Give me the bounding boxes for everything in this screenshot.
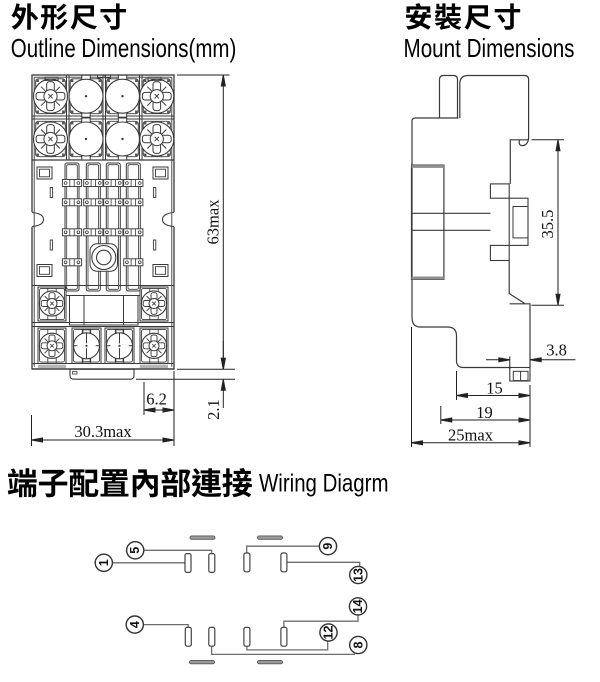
svg-text:2.1: 2.1 [204,399,223,420]
svg-text:15: 15 [486,379,503,398]
svg-text:14: 14 [351,599,365,613]
svg-text:13: 13 [351,568,365,582]
svg-text:30.3max: 30.3max [74,422,132,441]
svg-text:12: 12 [322,626,336,640]
svg-text:25max: 25max [448,426,494,445]
svg-text:8: 8 [351,641,365,648]
svg-text:3.8: 3.8 [546,340,567,359]
svg-text:Wiring Diagrm: Wiring Diagrm [259,470,389,498]
svg-text:6.2: 6.2 [146,390,167,409]
svg-text:Outline Dimensions(mm): Outline Dimensions(mm) [11,33,237,63]
svg-text:35.5: 35.5 [538,210,557,239]
svg-text:4: 4 [128,621,142,628]
svg-text:63max: 63max [204,199,223,245]
svg-text:9: 9 [321,543,335,550]
svg-text:19: 19 [476,403,493,422]
svg-text:1: 1 [97,559,111,566]
svg-text:Mount Dimensions: Mount Dimensions [404,33,575,63]
svg-text:5: 5 [128,547,142,554]
